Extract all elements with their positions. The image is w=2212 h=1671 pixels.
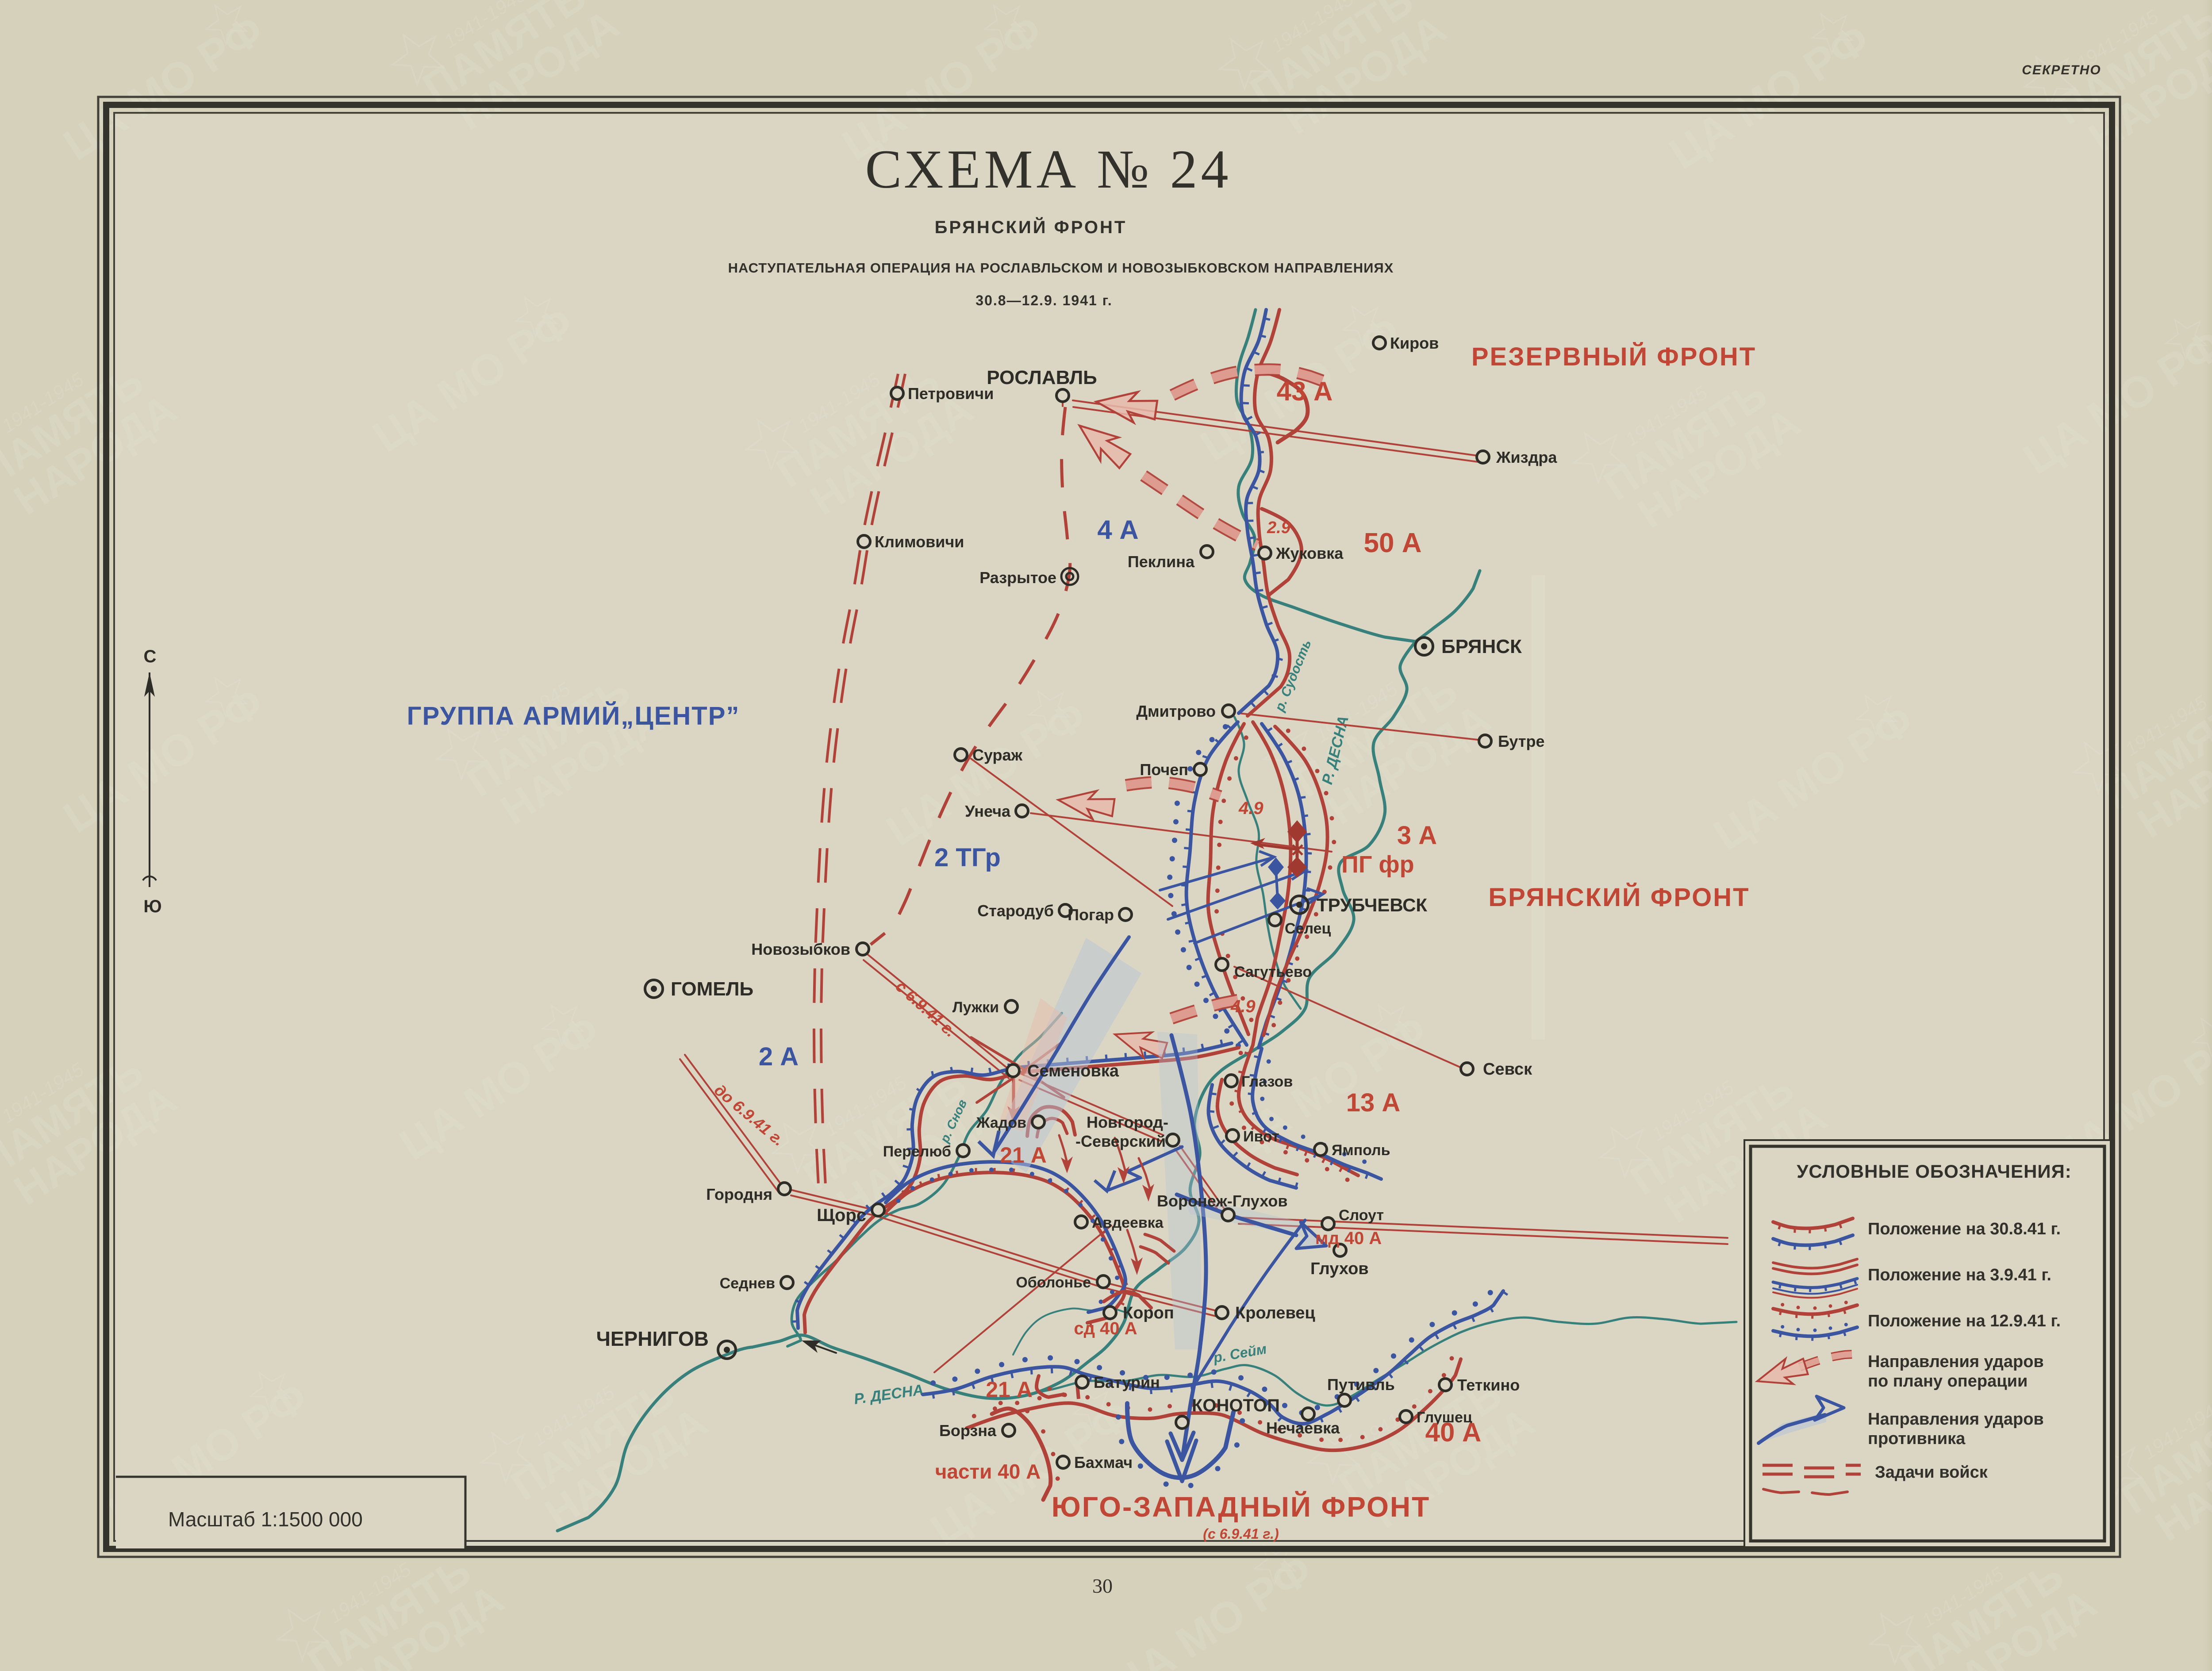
svg-text:Перелюб: Перелюб xyxy=(883,1143,951,1160)
svg-text:2 А: 2 А xyxy=(759,1042,799,1071)
svg-text:Теткино: Теткино xyxy=(1457,1376,1520,1394)
svg-text:Сураж: Сураж xyxy=(972,746,1023,764)
svg-text:Жиздра: Жиздра xyxy=(1496,448,1557,466)
svg-text:Бахмач: Бахмач xyxy=(1074,1453,1133,1471)
svg-text:Слоут: Слоут xyxy=(1339,1207,1384,1224)
svg-text:мд 40 А: мд 40 А xyxy=(1315,1229,1382,1248)
svg-text:Положение на 3.9.41 г.: Положение на 3.9.41 г. xyxy=(1868,1266,2051,1284)
svg-text:2.9: 2.9 xyxy=(1267,519,1290,537)
svg-text:Селец: Селец xyxy=(1285,920,1331,937)
svg-text:Глазов: Глазов xyxy=(1241,1073,1293,1090)
svg-text:2 ТГр: 2 ТГр xyxy=(934,843,1001,872)
svg-text:Городня: Городня xyxy=(706,1185,772,1203)
svg-text:50 А: 50 А xyxy=(1364,528,1422,558)
svg-text:Севск: Севск xyxy=(1483,1060,1532,1079)
svg-text:СЕКРЕТНО: СЕКРЕТНО xyxy=(2022,63,2101,77)
svg-text:Воронеж-Глухов: Воронеж-Глухов xyxy=(1157,1192,1288,1210)
svg-text:Глухов: Глухов xyxy=(1310,1260,1369,1278)
svg-text:Киров: Киров xyxy=(1390,334,1439,352)
svg-text:Авдеевка: Авдеевка xyxy=(1092,1214,1164,1231)
svg-text:ГРУППА АРМИЙ„ЦЕНТР”: ГРУППА АРМИЙ„ЦЕНТР” xyxy=(407,702,740,730)
svg-text:43 А: 43 А xyxy=(1277,376,1333,406)
svg-text:40 А: 40 А xyxy=(1425,1417,1482,1447)
svg-text:БРЯНСКИЙ ФРОНТ: БРЯНСКИЙ ФРОНТ xyxy=(935,217,1127,237)
svg-text:Стародуб: Стародуб xyxy=(977,902,1054,920)
svg-text:Оболонье: Оболонье xyxy=(1016,1274,1091,1291)
svg-text:Лужки: Лужки xyxy=(952,999,999,1016)
svg-text:КОНОТОП: КОНОТОП xyxy=(1192,1396,1280,1415)
svg-text:БРЯНСКИЙ ФРОНТ: БРЯНСКИЙ ФРОНТ xyxy=(1488,883,1750,912)
svg-text:21 А: 21 А xyxy=(1000,1143,1047,1168)
svg-text:Новозыбков: Новозыбков xyxy=(751,940,850,958)
svg-text:Разрытое: Разрытое xyxy=(979,569,1056,587)
svg-text:Новгород-: Новгород- xyxy=(1087,1113,1168,1131)
svg-text:-Северский: -Северский xyxy=(1075,1132,1166,1150)
svg-text:13 А: 13 А xyxy=(1346,1088,1401,1117)
svg-text:С: С xyxy=(144,647,157,666)
svg-text:Климовичи: Климовичи xyxy=(875,533,964,551)
svg-text:Направления ударов: Направления ударов xyxy=(1868,1352,2044,1371)
svg-text:Кролевец: Кролевец xyxy=(1235,1304,1315,1322)
svg-text:Ю: Ю xyxy=(143,897,161,916)
svg-text:(с 6.9.41 г.): (с 6.9.41 г.) xyxy=(1203,1526,1279,1542)
svg-text:Щорс: Щорс xyxy=(817,1206,866,1225)
svg-text:Путивль: Путивль xyxy=(1327,1375,1395,1394)
svg-text:Ямполь: Ямполь xyxy=(1332,1142,1390,1159)
svg-text:Батурин: Батурин xyxy=(1094,1373,1160,1391)
svg-text:ПГ фр: ПГ фр xyxy=(1341,851,1414,878)
svg-text:части 40 А: части 40 А xyxy=(935,1460,1041,1483)
svg-text:Сагутьево: Сагутьево xyxy=(1234,964,1312,980)
svg-text:ЧЕРНИГОВ: ЧЕРНИГОВ xyxy=(596,1327,709,1350)
svg-text:Петровичи: Петровичи xyxy=(908,384,994,403)
svg-text:Почеп: Почеп xyxy=(1140,761,1188,779)
svg-text:Семеновка: Семеновка xyxy=(1027,1062,1119,1080)
svg-text:Ивот: Ивот xyxy=(1243,1128,1279,1145)
svg-text:СХЕМА № 24: СХЕМА № 24 xyxy=(865,139,1232,200)
svg-text:Бутре: Бутре xyxy=(1498,732,1545,750)
svg-text:Погар: Погар xyxy=(1068,906,1114,924)
svg-text:Седнев: Седнев xyxy=(720,1275,775,1292)
svg-text:Унеча: Унеча xyxy=(965,802,1011,820)
svg-text:21 А: 21 А xyxy=(986,1377,1033,1402)
svg-text:Борзна: Борзна xyxy=(939,1421,997,1440)
svg-text:30: 30 xyxy=(1092,1575,1113,1597)
svg-text:Положение на 12.9.41 г.: Положение на 12.9.41 г. xyxy=(1868,1312,2061,1330)
svg-text:4 А: 4 А xyxy=(1097,515,1138,545)
svg-text:4.9: 4.9 xyxy=(1238,799,1263,818)
svg-text:Пеклина: Пеклина xyxy=(1128,553,1195,571)
svg-text:Жадов: Жадов xyxy=(976,1114,1026,1131)
svg-text:Нечаевка: Нечаевка xyxy=(1266,1419,1340,1437)
svg-text:Положение на 30.8.41 г.: Положение на 30.8.41 г. xyxy=(1868,1220,2061,1238)
svg-text:30.8—12.9. 1941 г.: 30.8—12.9. 1941 г. xyxy=(975,292,1112,308)
svg-text:сд 40 А: сд 40 А xyxy=(1074,1319,1137,1338)
svg-text:РЕЗЕРВНЫЙ ФРОНТ: РЕЗЕРВНЫЙ ФРОНТ xyxy=(1471,342,1756,371)
svg-text:ГОМЕЛЬ: ГОМЕЛЬ xyxy=(671,978,753,1000)
svg-text:противника: противника xyxy=(1868,1429,1966,1448)
svg-text:Дмитрово: Дмитрово xyxy=(1136,702,1216,720)
svg-text:Жуковка: Жуковка xyxy=(1275,544,1344,562)
svg-text:НАСТУПАТЕЛЬНАЯ ОПЕРАЦИЯ НА: НАСТУПАТЕЛЬНАЯ ОПЕРАЦИЯ НА РОСЛАВЛЬСКОМ … xyxy=(728,260,1394,276)
svg-text:4.9: 4.9 xyxy=(1230,997,1256,1016)
svg-text:3 А: 3 А xyxy=(1397,821,1437,850)
svg-text:БРЯНСК: БРЯНСК xyxy=(1441,636,1522,657)
svg-text:Задачи войск: Задачи войск xyxy=(1875,1463,1988,1482)
svg-text:ЮГО-ЗАПАДНЫЙ ФРОНТ: ЮГО-ЗАПАДНЫЙ ФРОНТ xyxy=(1052,1490,1430,1523)
svg-text:РОСЛАВЛЬ: РОСЛАВЛЬ xyxy=(987,367,1097,388)
svg-text:Направления ударов: Направления ударов xyxy=(1868,1410,2044,1429)
svg-text:Масштаб 1:1500 000: Масштаб 1:1500 000 xyxy=(168,1508,363,1531)
svg-text:по плану операции: по плану операции xyxy=(1868,1372,2028,1391)
svg-text:ТРУБЧЕВСК: ТРУБЧЕВСК xyxy=(1317,895,1427,915)
svg-text:УСЛОВНЫЕ ОБОЗНАЧЕНИЯ:: УСЛОВНЫЕ ОБОЗНАЧЕНИЯ: xyxy=(1797,1161,2072,1182)
